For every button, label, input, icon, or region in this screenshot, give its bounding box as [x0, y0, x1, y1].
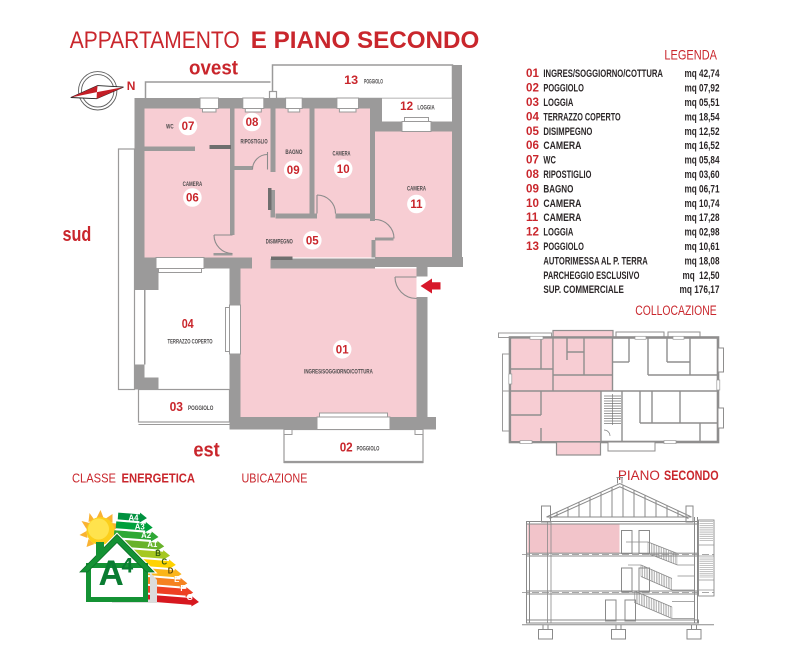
svg-text:mq 18,54: mq 18,54: [685, 111, 720, 123]
svg-text:mq 42,74: mq 42,74: [685, 68, 720, 80]
svg-text:APPARTAMENTO: APPARTAMENTO: [70, 27, 240, 54]
svg-text:LEGENDA: LEGENDA: [664, 47, 717, 63]
svg-text:12: 12: [400, 101, 413, 113]
svg-text:DISIMPEGNO: DISIMPEGNO: [266, 239, 293, 246]
svg-text:mq 16,52: mq 16,52: [685, 140, 720, 152]
svg-text:05: 05: [306, 235, 319, 247]
svg-text:mq 03,60: mq 03,60: [685, 169, 720, 181]
svg-text:mq 10,74: mq 10,74: [685, 198, 720, 210]
svg-text:AUTORIMESSA AL P. TERRA: AUTORIMESSA AL P. TERRA: [543, 255, 647, 267]
svg-text:mq 05,51: mq 05,51: [685, 97, 720, 109]
svg-text:sud: sud: [63, 224, 92, 246]
svg-text:mq 176,17: mq 176,17: [680, 284, 720, 296]
svg-text:ENERGETICA: ENERGETICA: [122, 471, 196, 486]
svg-text:PIANO: PIANO: [618, 467, 660, 483]
svg-text:CAMERA: CAMERA: [543, 140, 581, 152]
svg-text:mq 12,52: mq 12,52: [685, 126, 720, 138]
svg-text:07: 07: [182, 121, 195, 133]
svg-text:CAMERA: CAMERA: [333, 150, 351, 157]
svg-text:06: 06: [526, 139, 539, 152]
svg-text:CLASSE: CLASSE: [72, 471, 116, 486]
svg-text:BAGNO: BAGNO: [543, 183, 573, 195]
svg-text:A: A: [99, 554, 124, 593]
svg-text:RIPOSTIGLIO: RIPOSTIGLIO: [543, 169, 591, 181]
svg-text:INGRES/SOGGIORNO/COTTURA: INGRES/SOGGIORNO/COTTURA: [543, 68, 663, 80]
svg-text:C: C: [162, 558, 168, 567]
svg-text:CAMERA: CAMERA: [543, 212, 581, 224]
svg-text:06: 06: [186, 193, 199, 205]
svg-text:E PIANO SECONDO: E PIANO SECONDO: [251, 27, 479, 54]
svg-text:A2: A2: [141, 531, 152, 540]
svg-text:04: 04: [526, 110, 539, 123]
svg-text:mq 06,71: mq 06,71: [685, 183, 720, 195]
svg-text:12: 12: [526, 226, 539, 239]
svg-text:TERRAZZO COPERTO: TERRAZZO COPERTO: [168, 339, 213, 346]
svg-text:A3: A3: [135, 522, 146, 531]
svg-text:13: 13: [344, 75, 358, 87]
svg-text:08: 08: [246, 117, 259, 129]
svg-text:03: 03: [170, 399, 183, 414]
svg-text:13: 13: [526, 240, 539, 253]
svg-text:POGGIOLO: POGGIOLO: [543, 241, 584, 253]
svg-text:10: 10: [526, 197, 539, 210]
svg-text:G: G: [187, 593, 193, 602]
svg-text:F: F: [180, 584, 185, 593]
svg-text:CAMERA: CAMERA: [183, 181, 203, 188]
svg-text:mq 07,92: mq 07,92: [685, 83, 720, 95]
svg-text:11: 11: [410, 199, 423, 211]
svg-text:est: est: [193, 440, 220, 462]
svg-text:mq 17,28: mq 17,28: [685, 212, 720, 224]
svg-text:10: 10: [337, 164, 350, 176]
svg-text:LOGGIA: LOGGIA: [417, 104, 435, 111]
svg-text:E: E: [174, 575, 179, 584]
svg-text:POGGIOLO: POGGIOLO: [543, 83, 584, 95]
svg-text:SUP. COMMERCIALE: SUP. COMMERCIALE: [543, 284, 624, 296]
svg-text:11: 11: [526, 211, 539, 224]
svg-text:TERRAZZO COPERTO: TERRAZZO COPERTO: [543, 111, 621, 123]
svg-text:LOGGIA: LOGGIA: [543, 227, 573, 239]
svg-text:POGGIOLO: POGGIOLO: [188, 405, 213, 412]
svg-text:mq 18,08: mq 18,08: [685, 255, 720, 267]
svg-text:B: B: [155, 549, 161, 558]
svg-text:CAMERA: CAMERA: [543, 198, 581, 210]
svg-text:COLLOCAZIONE: COLLOCAZIONE: [635, 303, 716, 318]
svg-text:02: 02: [340, 440, 353, 455]
svg-text:02: 02: [526, 82, 539, 95]
svg-text:CAMERA: CAMERA: [407, 185, 426, 192]
svg-text:08: 08: [526, 168, 539, 181]
svg-text:03: 03: [526, 96, 539, 109]
svg-text:A4: A4: [129, 514, 140, 523]
svg-text:mq 12,50: mq 12,50: [683, 270, 720, 282]
svg-text:SECONDO: SECONDO: [664, 467, 719, 483]
svg-text:04: 04: [182, 316, 195, 331]
svg-text:UBICAZIONE: UBICAZIONE: [242, 471, 308, 486]
svg-text:POGGIOLO: POGGIOLO: [364, 79, 383, 86]
svg-text:WC: WC: [166, 123, 174, 130]
svg-text:BAGNO: BAGNO: [285, 149, 302, 156]
svg-text:DISIMPEGNO: DISIMPEGNO: [543, 126, 592, 138]
svg-text:PARCHEGGIO ESCLUSIVO: PARCHEGGIO ESCLUSIVO: [543, 270, 639, 282]
svg-text:01: 01: [336, 344, 349, 356]
svg-text:POGGIOLO: POGGIOLO: [357, 445, 380, 452]
svg-text:4: 4: [122, 555, 134, 578]
svg-text:WC: WC: [543, 155, 556, 167]
svg-text:09: 09: [287, 165, 300, 177]
svg-text:RIPOSTIGLIO: RIPOSTIGLIO: [241, 138, 268, 145]
svg-text:05: 05: [526, 125, 539, 138]
svg-text:01: 01: [526, 67, 539, 80]
svg-text:D: D: [168, 566, 174, 575]
svg-text:ovest: ovest: [189, 58, 238, 80]
svg-text:07: 07: [526, 154, 539, 167]
svg-text:N: N: [127, 79, 136, 93]
svg-text:INGRES/SOGGIORNO/COTTURA: INGRES/SOGGIORNO/COTTURA: [304, 369, 373, 376]
svg-text:A1: A1: [147, 540, 158, 549]
svg-text:mq 02,98: mq 02,98: [685, 227, 720, 239]
svg-text:mq 05,84: mq 05,84: [685, 155, 720, 167]
svg-text:09: 09: [526, 182, 539, 195]
svg-text:mq 10,61: mq 10,61: [685, 241, 720, 253]
svg-text:LOGGIA: LOGGIA: [543, 97, 573, 109]
